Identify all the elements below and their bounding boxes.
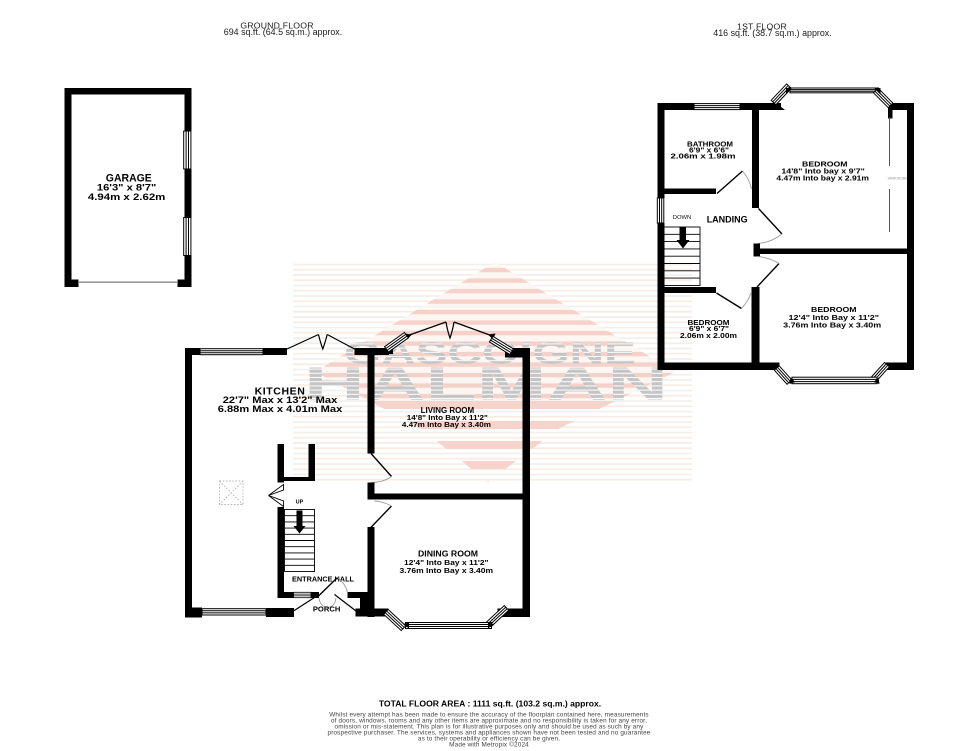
svg-text:3.76m Into Bay x 3.40m: 3.76m Into Bay x 3.40m — [400, 566, 494, 575]
svg-text:2.06m x 1.98m: 2.06m x 1.98m — [671, 154, 736, 161]
svg-text:HALMAN: HALMAN — [304, 358, 668, 410]
svg-text:6.88m Max x 4.01m Max: 6.88m Max x 4.01m Max — [218, 403, 343, 414]
svg-text:4.47m Into Bay x 3.40m: 4.47m Into Bay x 3.40m — [402, 420, 492, 429]
svg-text:4.94m x 2.62m: 4.94m x 2.62m — [88, 192, 166, 203]
svg-text:2.06m x 2.00m: 2.06m x 2.00m — [680, 333, 737, 340]
svg-text:694 sq.ft. (64.5 sq.m.) approx: 694 sq.ft. (64.5 sq.m.) approx. — [224, 27, 342, 37]
svg-text:ENTRANCE HALL: ENTRANCE HALL — [292, 575, 355, 584]
svg-text:4.47m Into bay x 2.91m: 4.47m Into bay x 2.91m — [776, 175, 869, 183]
svg-text:Made with Metropix ©2024: Made with Metropix ©2024 — [449, 740, 529, 748]
svg-text:UP: UP — [296, 500, 304, 506]
svg-text:416 sq.ft. (38.7 sq.m.) approx: 416 sq.ft. (38.7 sq.m.) approx. — [713, 28, 831, 38]
svg-text:BEDROOM: BEDROOM — [811, 305, 857, 314]
svg-text:WARDROBE: WARDROBE — [888, 177, 909, 181]
svg-text:PORCH: PORCH — [313, 604, 341, 613]
svg-text:TOTAL FLOOR AREA : 1111 sq.ft.: TOTAL FLOOR AREA : 1111 sq.ft. (103.2 sq… — [379, 699, 601, 709]
svg-text:LANDING: LANDING — [707, 215, 748, 225]
svg-text:3.76m Into Bay x 3.40m: 3.76m Into Bay x 3.40m — [783, 321, 881, 329]
svg-text:DOWN: DOWN — [673, 215, 692, 221]
